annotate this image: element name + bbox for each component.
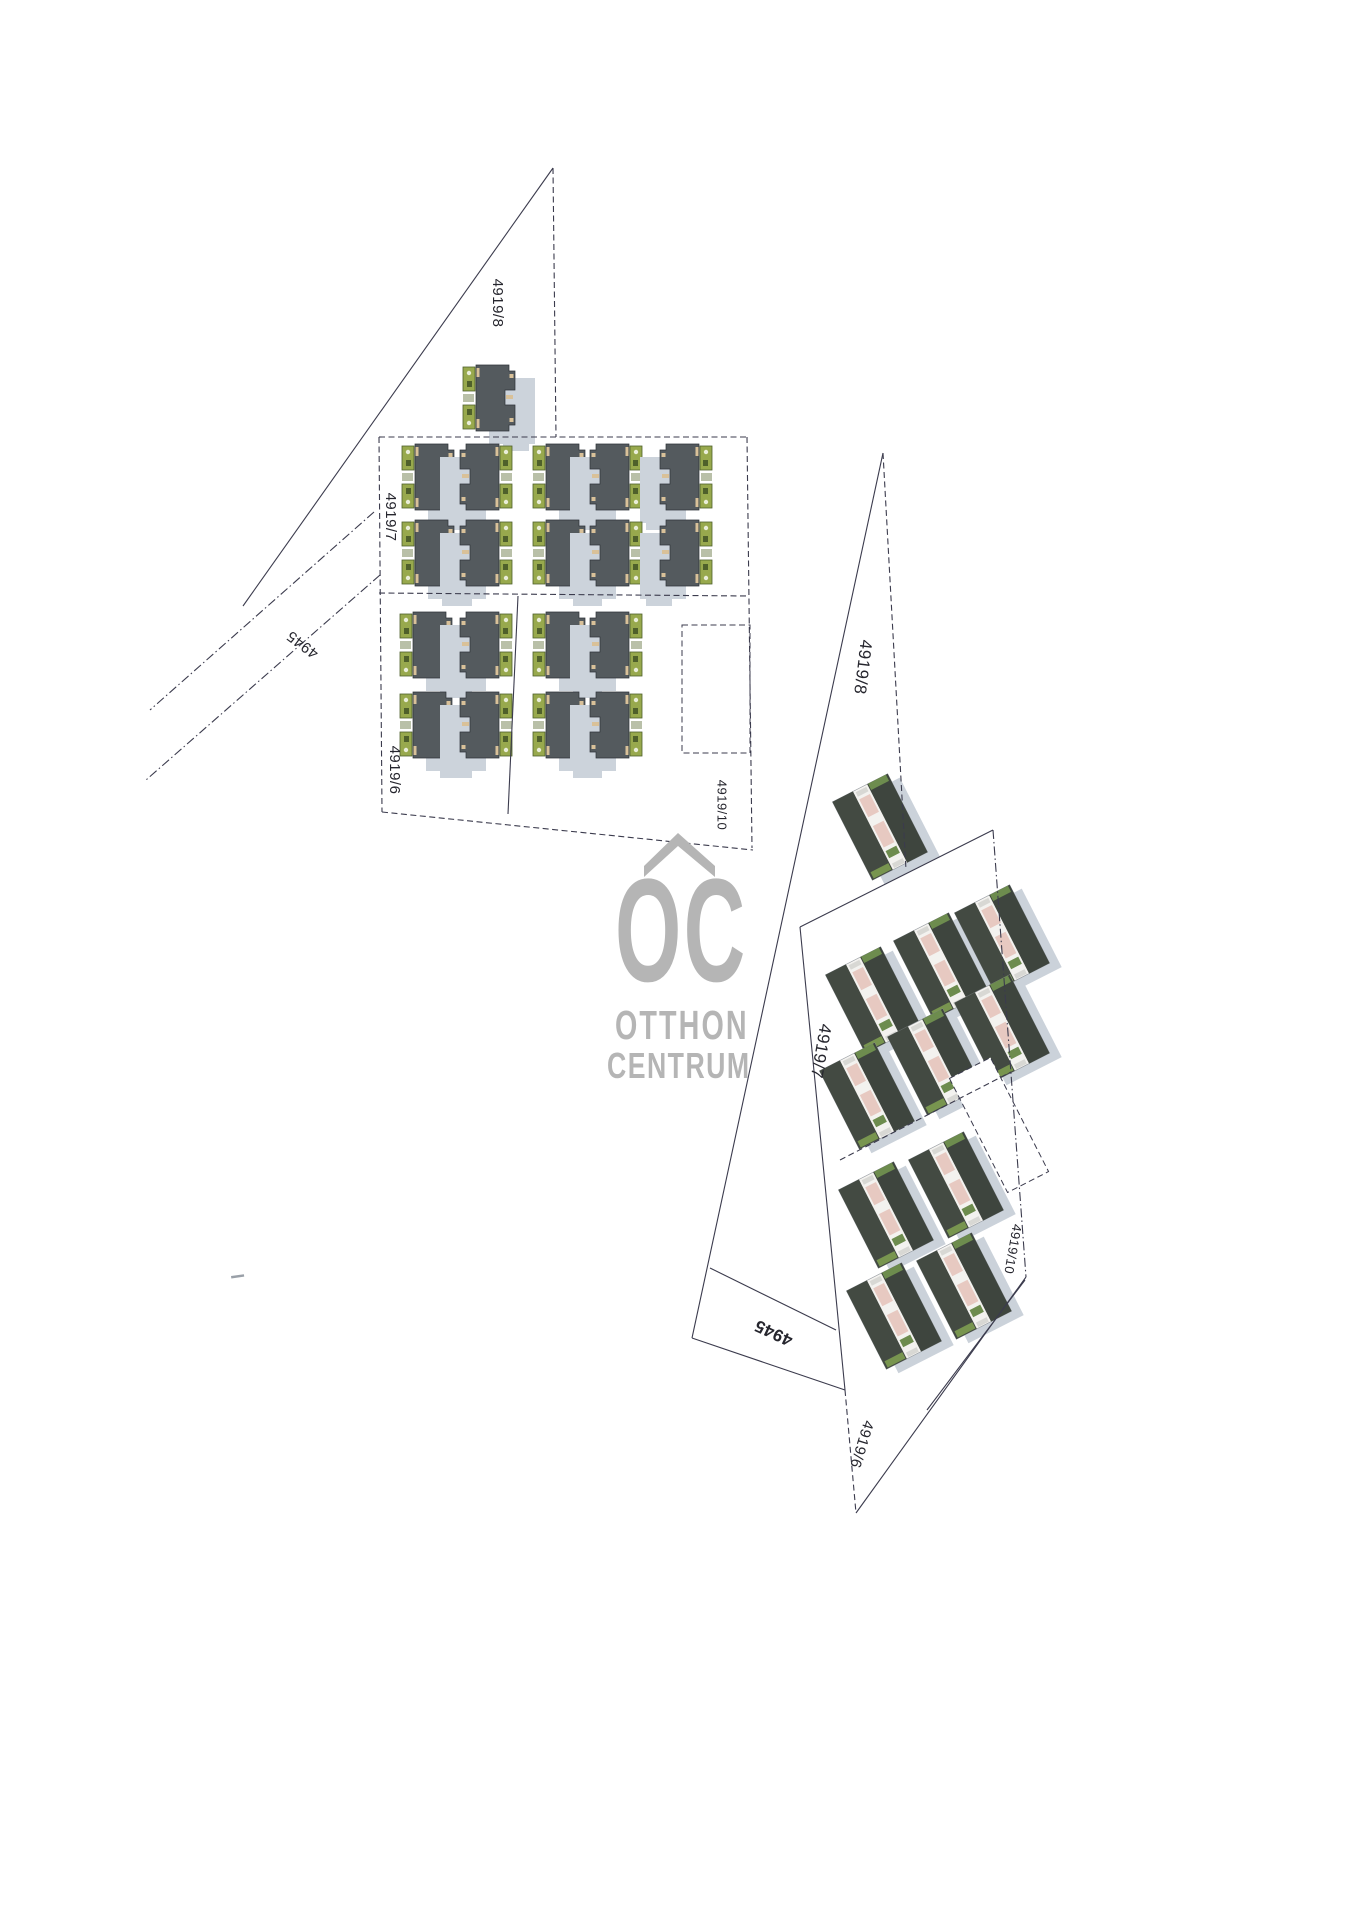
house-block — [640, 444, 712, 530]
parcel-boundary-line — [146, 575, 380, 780]
site-plan-canvas: 4919/84919/749454919/64919/10 4919/84919… — [0, 0, 1357, 1920]
empty-lot — [682, 625, 750, 753]
parcel-label-4919-8: 4919/8 — [850, 639, 876, 696]
parcel-boundary-line — [710, 1268, 836, 1330]
house-block — [832, 770, 939, 889]
parcel-boundary-line — [692, 1338, 845, 1390]
site-plan-right: 4919/84919/749454919/64919/10 — [692, 453, 1062, 1513]
parcel-boundary-line — [553, 168, 556, 437]
scanned-site-plan-page: { "logo": { "mark": "OC", "line1": "OTTH… — [0, 0, 1357, 1920]
parcel-label-4945: 4945 — [752, 1316, 796, 1350]
house-block — [640, 520, 712, 606]
parcel-label-4945: 4945 — [283, 627, 321, 662]
scan-artifact-mark — [231, 1274, 244, 1278]
scan-artifact — [231, 1274, 244, 1278]
parcel-label-4919-7: 4919/7 — [382, 493, 399, 542]
site-plan-left: 4919/84919/749454919/64919/10 — [146, 168, 753, 850]
parcel-boundary-line — [382, 812, 753, 850]
parcel-boundary-line — [150, 512, 374, 710]
parcel-label-4919-6: 4919/6 — [846, 1418, 877, 1470]
parcel-label-4919-6: 4919/6 — [386, 746, 403, 795]
parcel-label-4919-10: 4919/10 — [1001, 1223, 1025, 1275]
parcel-label-4919-8: 4919/8 — [489, 279, 506, 328]
parcel-boundary-line — [379, 437, 382, 812]
parcel-label-4919-10: 4919/10 — [715, 780, 730, 831]
house-block — [463, 365, 535, 451]
